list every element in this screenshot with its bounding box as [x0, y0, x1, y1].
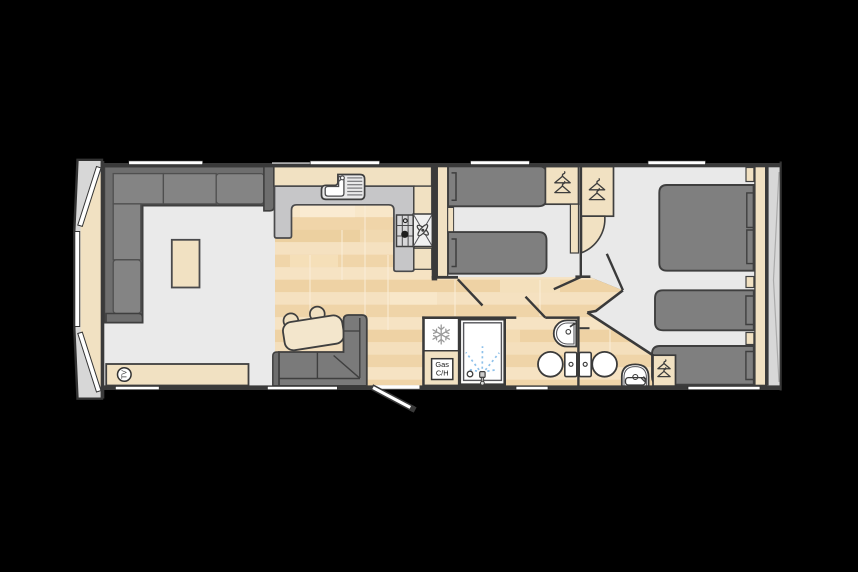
svg-text:TV: TV	[122, 370, 129, 379]
svg-text:C/H: C/H	[436, 369, 449, 378]
svg-text:Gas: Gas	[435, 360, 449, 369]
